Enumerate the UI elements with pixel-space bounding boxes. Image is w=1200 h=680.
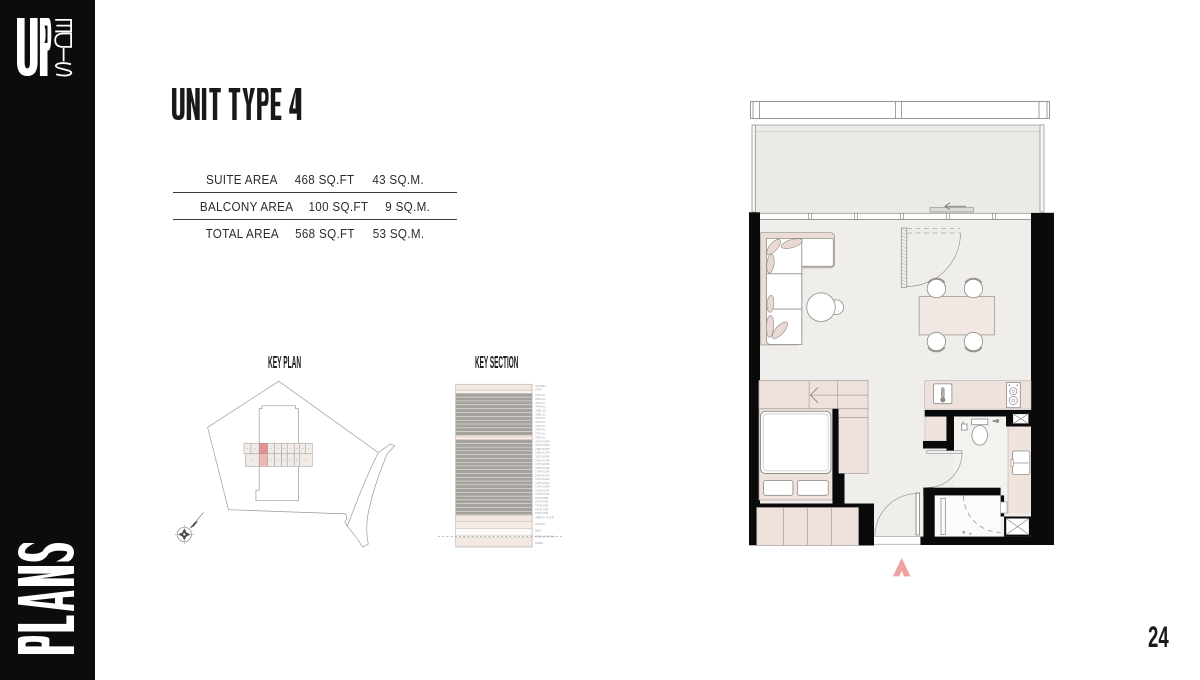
svg-text:18TH FLOOR: 18TH FLOOR (535, 468, 550, 470)
svg-text:PODIUM: PODIUM (535, 524, 544, 526)
svg-text:15TH FLOOR: 15TH FLOOR (535, 479, 550, 481)
svg-text:32ND LVL: 32ND LVL (535, 414, 546, 416)
svg-text:37TH LVL: 37TH LVL (535, 395, 546, 397)
svg-text:AMENITY FLOOR: AMENITY FLOOR (535, 517, 554, 520)
svg-text:MEZZ: MEZZ (535, 531, 542, 533)
svg-text:25TH FLOOR: 25TH FLOOR (535, 441, 550, 443)
svg-text:PARAPET: PARAPET (535, 385, 546, 388)
svg-text:34TH LVL: 34TH LVL (535, 407, 546, 409)
svg-text:21ST FLOOR: 21ST FLOOR (535, 457, 549, 459)
svg-text:28TH LVL: 28TH LVL (535, 430, 546, 432)
svg-text:6TH FLOOR: 6TH FLOOR (535, 509, 548, 511)
svg-text:ROOF: ROOF (535, 389, 542, 391)
svg-text:30TH LVL: 30TH LVL (535, 422, 546, 424)
svg-text:36TH LVL: 36TH LVL (535, 399, 546, 401)
svg-text:BSMNT: BSMNT (535, 543, 544, 545)
svg-text:7TH FLOOR: 7TH FLOOR (535, 506, 548, 508)
svg-text:9TH FLOOR: 9TH FLOOR (535, 498, 548, 500)
svg-text:10TH FLOOR: 10TH FLOOR (535, 494, 550, 496)
svg-text:12TH FLOOR: 12TH FLOOR (535, 487, 550, 489)
svg-text:27TH LVL: 27TH LVL (535, 434, 546, 436)
svg-text:5TH FLOOR: 5TH FLOOR (535, 513, 548, 515)
svg-text:26TH LVL: 26TH LVL (535, 438, 546, 440)
svg-text:14TH FLOOR: 14TH FLOOR (535, 483, 550, 485)
svg-text:29TH LVL: 29TH LVL (535, 426, 546, 428)
svg-text:24TH FLOOR: 24TH FLOOR (535, 445, 550, 447)
svg-text:19TH FLOOR: 19TH FLOOR (535, 464, 550, 466)
svg-text:20TH FLOOR: 20TH FLOOR (535, 460, 550, 462)
svg-text:33RD LVL: 33RD LVL (535, 411, 546, 413)
svg-text:31ST LVL: 31ST LVL (535, 418, 546, 420)
svg-text:35TH LVL: 35TH LVL (535, 403, 546, 405)
svg-text:22ND FLOOR: 22ND FLOOR (535, 453, 550, 455)
svg-text:GROUND FLR LVL: GROUND FLR LVL (535, 537, 555, 539)
svg-text:23RD FLOOR: 23RD FLOOR (535, 449, 550, 451)
svg-text:17TH FLOOR: 17TH FLOOR (535, 472, 550, 474)
svg-text:11TH FLOOR: 11TH FLOOR (535, 490, 549, 492)
svg-text:16TH FLOOR: 16TH FLOOR (535, 475, 550, 477)
svg-text:8TH FLOOR: 8TH FLOOR (535, 502, 548, 504)
